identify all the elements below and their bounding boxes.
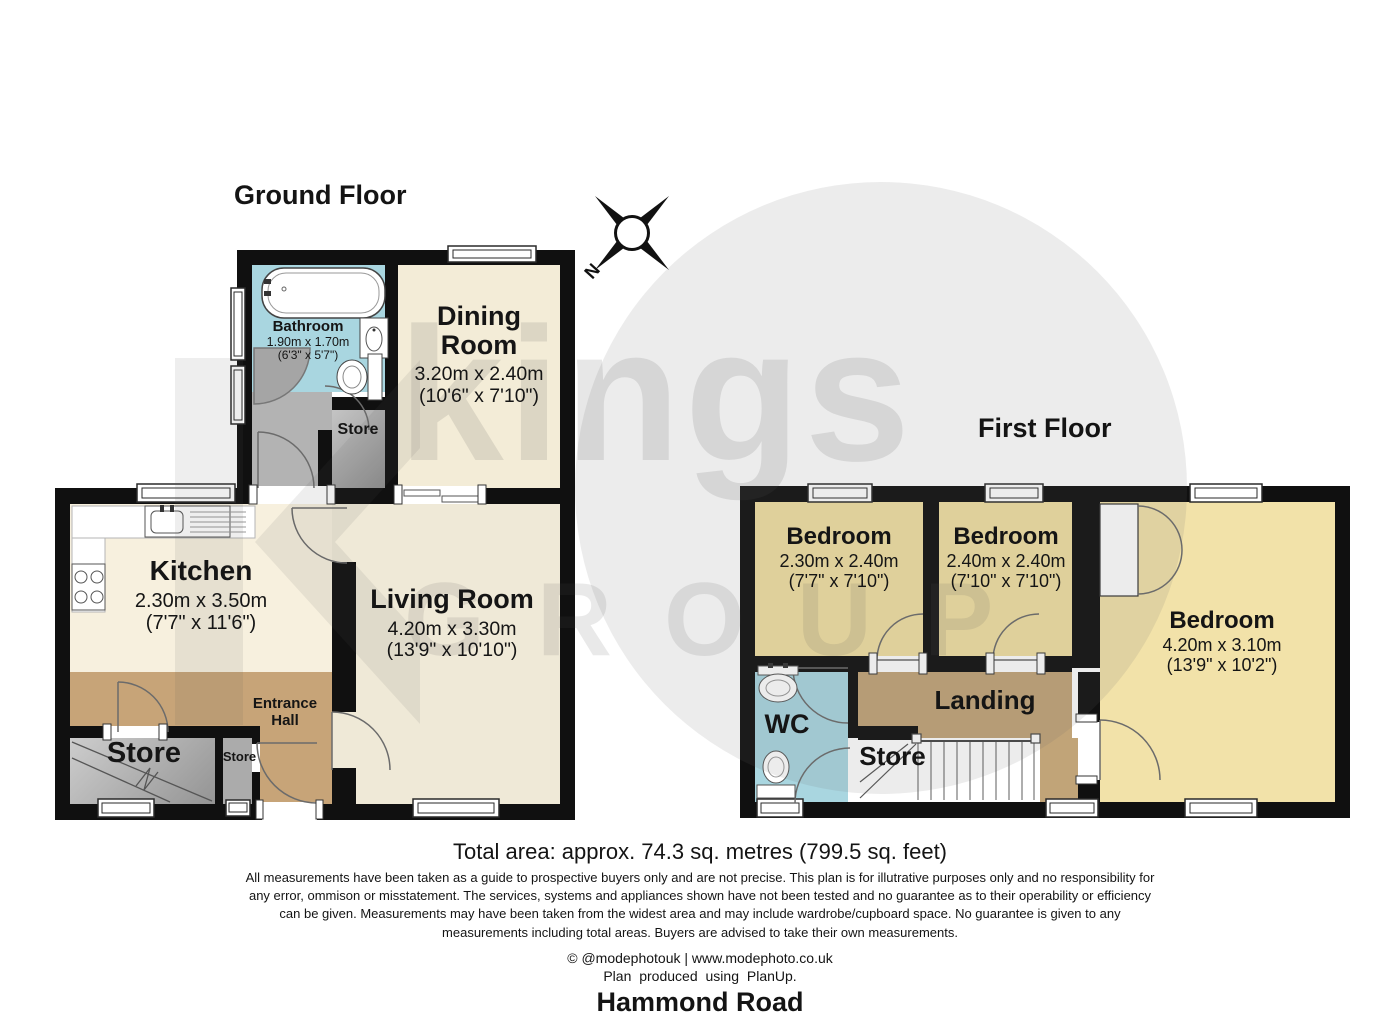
address-title: Hammond Road (0, 987, 1400, 1018)
landing-label: Landing (905, 686, 1065, 715)
wall (560, 488, 575, 820)
room-dim-metric: 2.30m x 2.40m (759, 552, 919, 572)
total-area-text: Total area: approx. 74.3 sq. metres (799… (0, 839, 1400, 865)
room-dim-metric: 3.20m x 2.40m (398, 364, 560, 385)
wall (332, 768, 356, 804)
bedroom-left-label: Bedroom 2.30m x 2.40m (7'7" x 7'10") (759, 524, 919, 592)
doorway-hall-kitchen (254, 486, 328, 504)
room-name: WC (752, 710, 822, 740)
wall (1039, 656, 1072, 672)
floorplan-page: kings GROUP Ground Floor First Floor N B… (0, 0, 1400, 1018)
room-name: Store (323, 421, 393, 439)
store-big-label: Store (84, 738, 204, 770)
wall (237, 250, 252, 504)
room-name: Bathroom (238, 319, 378, 336)
first-landing-floor-right (1040, 738, 1078, 802)
wall (318, 430, 332, 488)
ground-floor-title: Ground Floor (234, 180, 406, 211)
wall (740, 486, 755, 818)
living-room-label: Living Room 4.20m x 3.30m (13'9" x 10'10… (352, 585, 552, 661)
room-name: Bedroom (1122, 608, 1322, 634)
wall (560, 250, 575, 504)
room-dim-imperial: (13'9" x 10'2") (1122, 656, 1322, 676)
wall (1078, 672, 1100, 722)
room-dim-imperial: (10'6" x 7'10") (398, 386, 560, 407)
room-name: Bedroom (926, 524, 1086, 550)
room-name: Store (845, 742, 940, 771)
wall (55, 488, 70, 820)
room-dim-metric: 1.90m x 1.70m (238, 336, 378, 350)
room-name: Entrance Hall (240, 695, 330, 730)
room-name: Dining Room (398, 302, 560, 359)
wall (755, 656, 876, 672)
wall (332, 672, 356, 712)
wall (1078, 780, 1100, 802)
dining-room-label: Dining Room 3.20m x 2.40m (10'6" x 7'10"… (398, 302, 560, 407)
wall (332, 397, 385, 410)
room-dim-imperial: (7'7" x 11'6") (91, 612, 311, 634)
room-name: Kitchen (91, 556, 311, 587)
compass-icon (595, 196, 669, 270)
room-dim-metric: 2.30m x 3.50m (91, 590, 311, 612)
room-dim-imperial: (7'7" x 7'10") (759, 572, 919, 592)
room-dim-metric: 4.20m x 3.30m (352, 619, 552, 640)
wc-label: WC (752, 710, 822, 740)
ground-entrance-hall-floor-lower (260, 738, 332, 804)
wall (740, 802, 1350, 818)
compass-north-label: N (580, 260, 604, 284)
doorway-dining-living (398, 486, 480, 504)
kitchen-label: Kitchen 2.30m x 3.50m (7'7" x 11'6") (91, 556, 311, 634)
room-name: Living Room (352, 585, 552, 614)
room-dim-imperial: (6'3" x 5'7") (238, 349, 378, 362)
room-dim-metric: 2.40m x 2.40m (926, 552, 1086, 572)
wall (740, 486, 1350, 502)
wall (848, 672, 858, 738)
room-dim-imperial: (7'10" x 7'10") (926, 572, 1086, 592)
bathroom-label: Bathroom 1.90m x 1.70m (6'3" x 5'7") (238, 319, 378, 362)
room-name: Store (212, 750, 267, 764)
wall (215, 738, 223, 804)
first-floor-title: First Floor (978, 413, 1112, 444)
room-name: Bedroom (759, 524, 919, 550)
room-dim-imperial: (13'9" x 10'10") (352, 640, 552, 661)
wall (858, 726, 918, 740)
entrance-hall-label: Entrance Hall (240, 695, 330, 730)
room-name: Store (84, 738, 204, 770)
ground-store-small-floor (223, 738, 252, 804)
wall (385, 250, 398, 504)
disclaimer-text: All measurements have been taken as a gu… (245, 869, 1155, 942)
room-name: Landing (905, 686, 1065, 715)
software-credit-text: Plan produced using PlanUp. (0, 968, 1400, 984)
room-dim-metric: 4.20m x 3.10m (1122, 636, 1322, 656)
bedroom-middle-label: Bedroom 2.40m x 2.40m (7'10" x 7'10") (926, 524, 1086, 592)
wall (923, 656, 991, 672)
store-first-label: Store (845, 742, 940, 771)
photo-credit-text: © @modephotouk | www.modephoto.co.uk (0, 950, 1400, 966)
wall (1335, 486, 1350, 818)
store-upper-label: Store (323, 421, 393, 439)
wall (237, 250, 575, 265)
store-small-label: Store (212, 750, 267, 764)
bedroom-right-label: Bedroom 4.20m x 3.10m (13'9" x 10'2") (1122, 608, 1322, 676)
front-door-opening (262, 802, 317, 820)
